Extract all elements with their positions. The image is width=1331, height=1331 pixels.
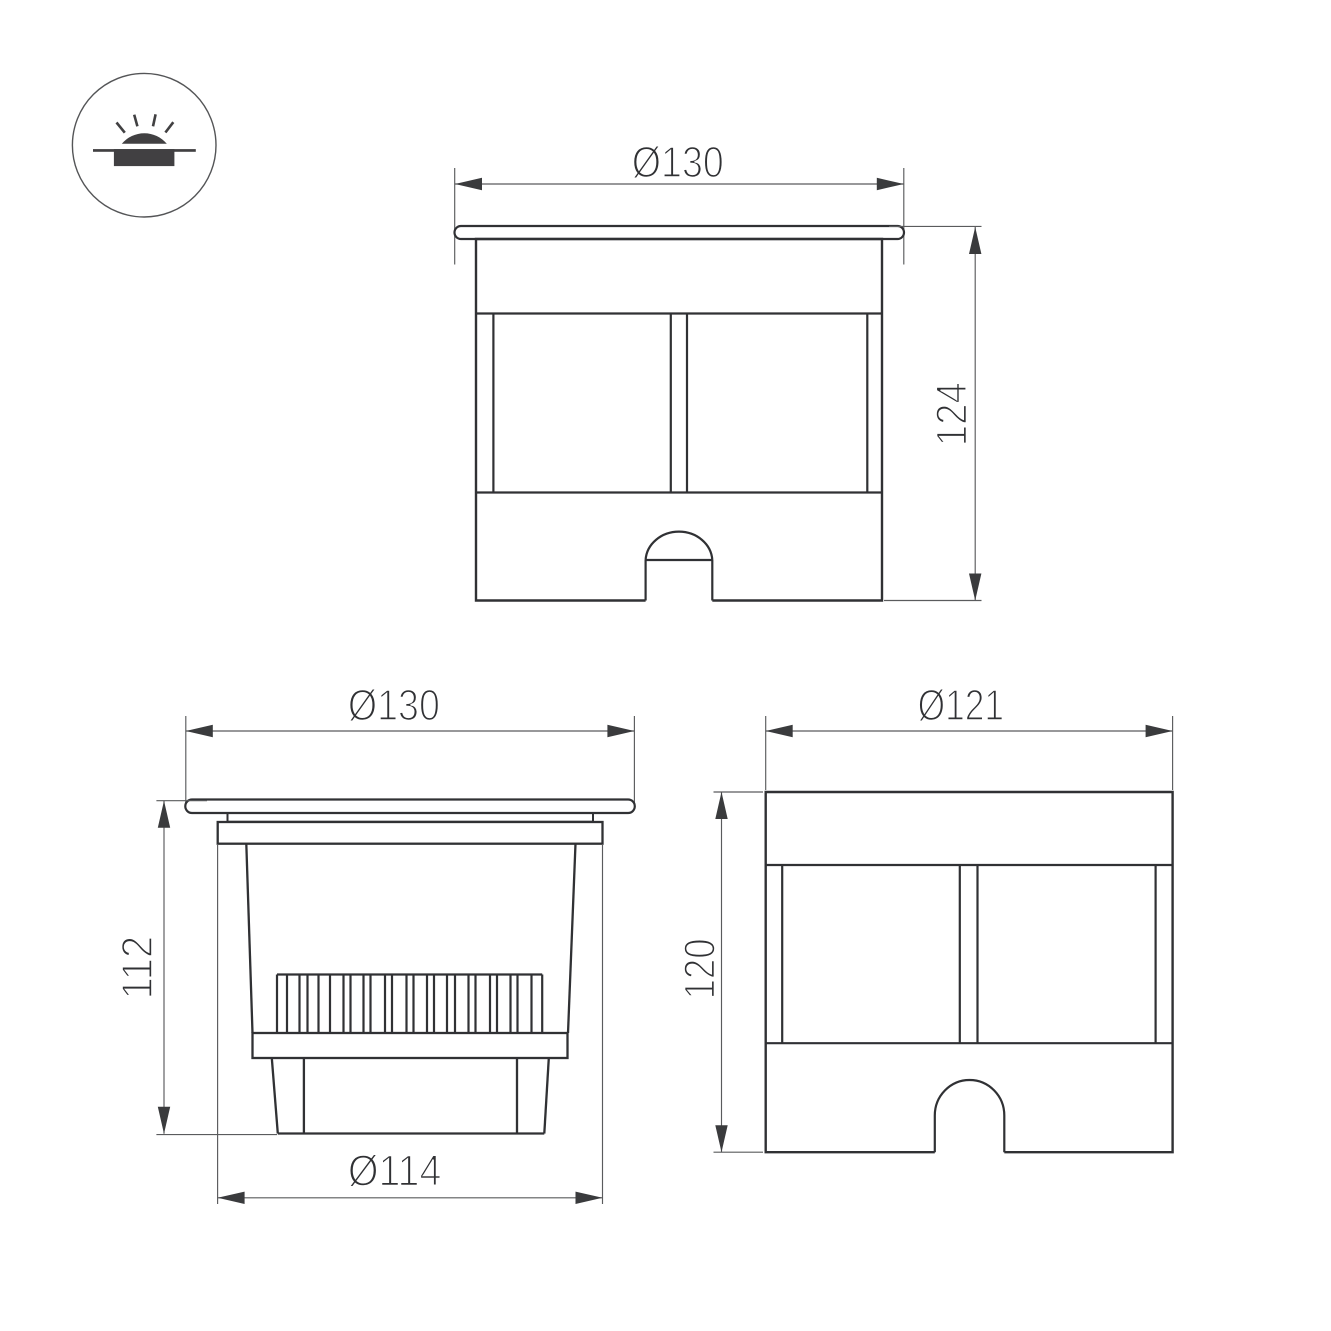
svg-text:120: 120: [676, 938, 725, 999]
svg-text:Ø130: Ø130: [348, 681, 440, 730]
svg-text:Ø114: Ø114: [348, 1147, 442, 1196]
svg-text:Ø130: Ø130: [632, 138, 724, 187]
svg-text:Ø121: Ø121: [918, 681, 1005, 730]
svg-text:112: 112: [113, 936, 162, 1000]
svg-text:124: 124: [927, 382, 976, 446]
